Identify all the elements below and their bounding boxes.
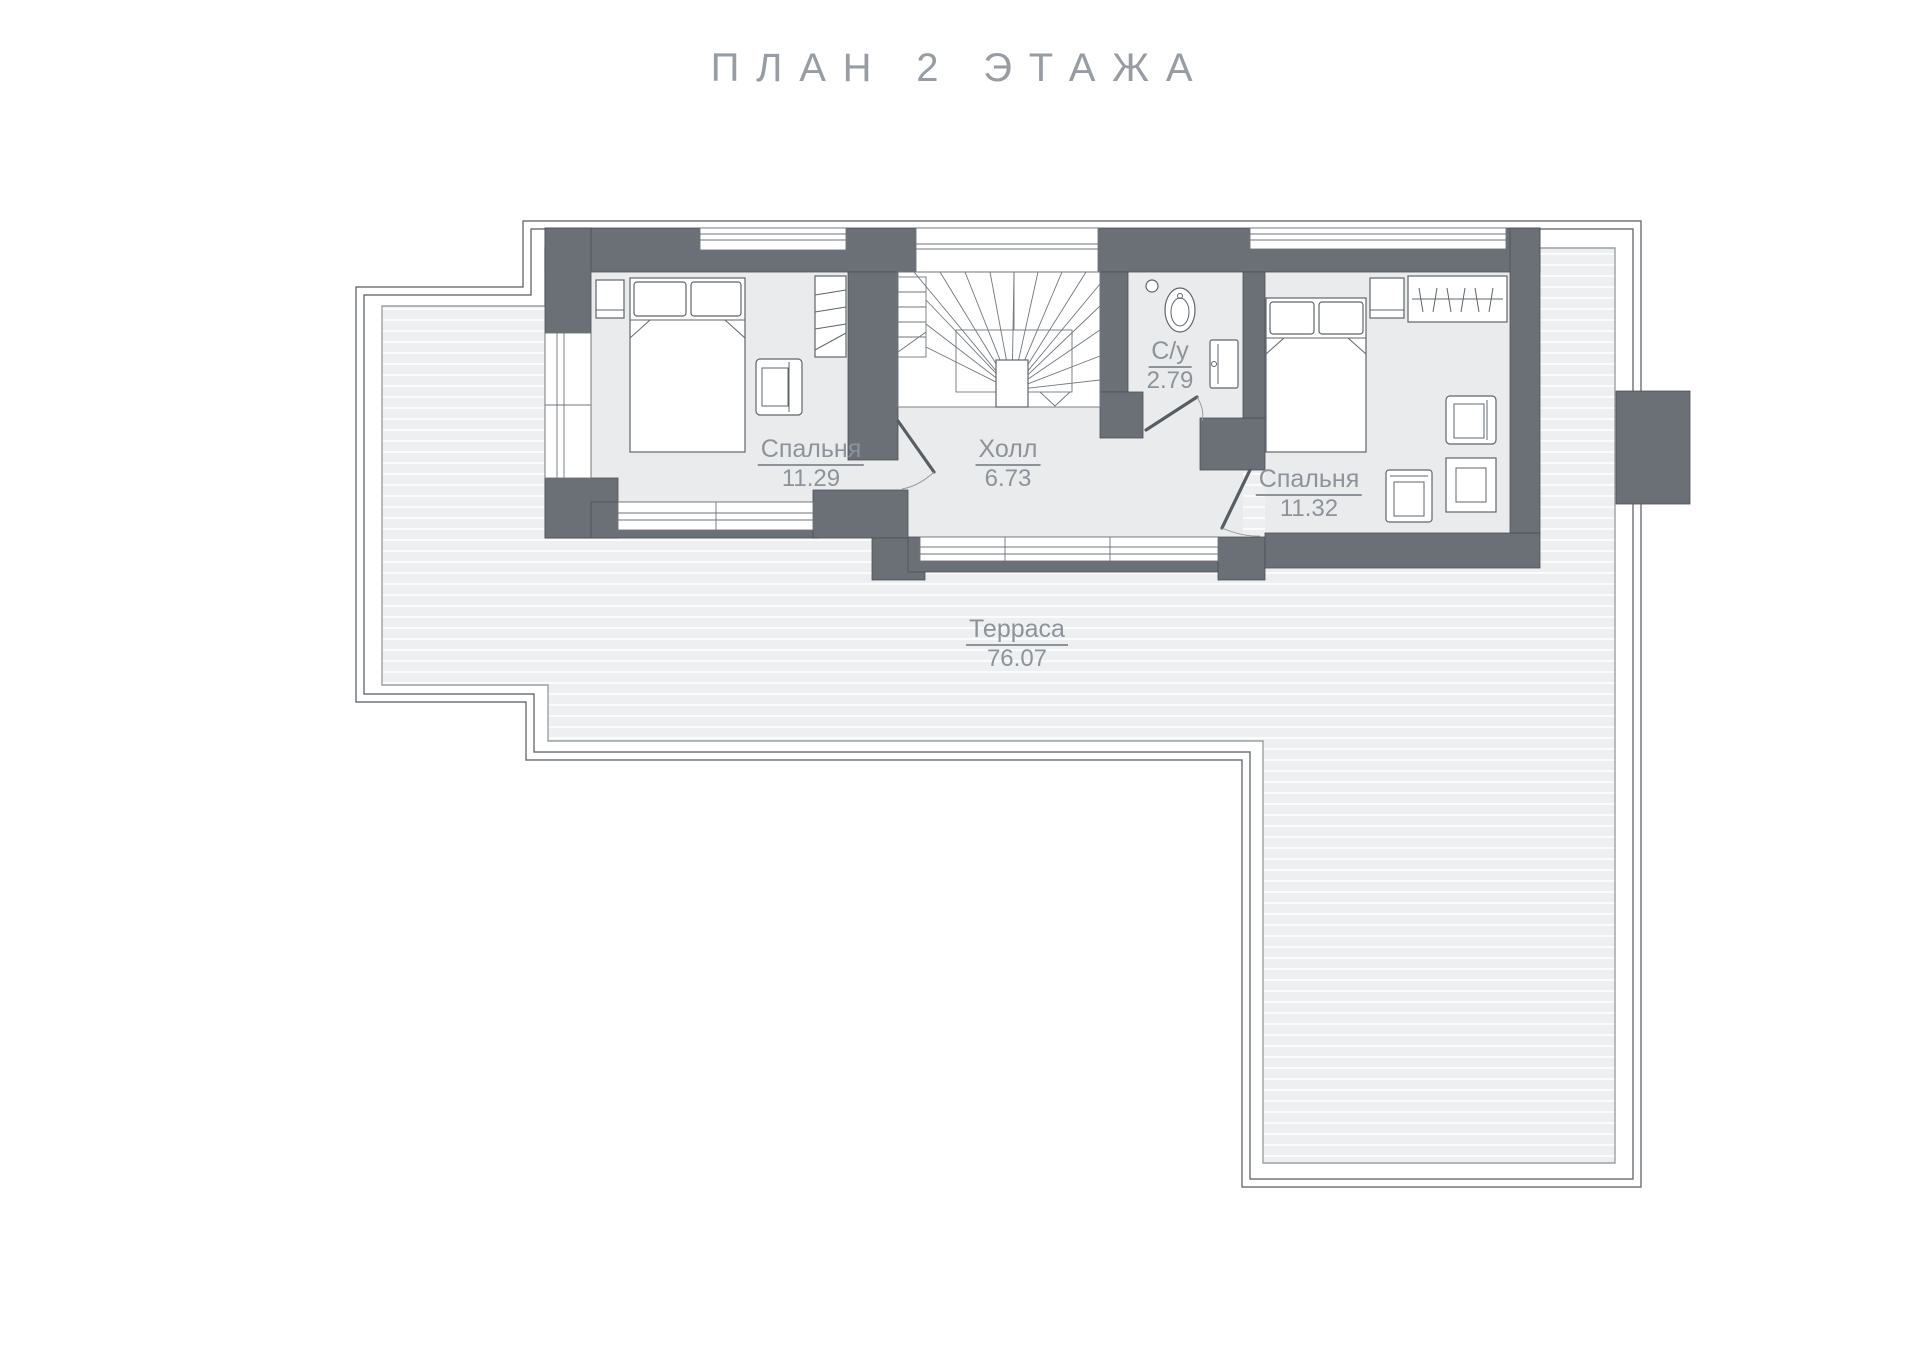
room-name: Спальня bbox=[758, 436, 864, 466]
room-label-bedroom-1: Спальня 11.29 bbox=[758, 436, 864, 492]
closet-icon bbox=[815, 276, 846, 357]
window-north-1 bbox=[700, 228, 846, 250]
room-name: С/у bbox=[1148, 338, 1192, 368]
window-north-2 bbox=[1250, 228, 1506, 249]
wall-bath-pier-west bbox=[1100, 392, 1143, 438]
wall-stair-bath bbox=[1100, 272, 1128, 392]
wall-south-bedroom2 bbox=[1265, 533, 1540, 568]
room-label-terrace: Терраса 76.07 bbox=[966, 616, 1068, 672]
window-south-bedroom1 bbox=[618, 502, 813, 530]
double-bed-icon bbox=[630, 278, 745, 452]
shower-icon bbox=[1210, 340, 1238, 388]
wall-east bbox=[1510, 228, 1540, 533]
side-table-icon bbox=[1446, 458, 1496, 512]
nightstand-icon bbox=[1370, 278, 1404, 318]
floor-hall bbox=[858, 392, 1243, 537]
window-south-hall bbox=[920, 537, 1218, 561]
wall-bath-east bbox=[1243, 272, 1265, 418]
room-area: 6.73 bbox=[976, 466, 1041, 492]
nightstand-icon bbox=[596, 280, 624, 318]
floor-plan-drawing bbox=[0, 0, 1920, 1357]
floor-plan-page: ПЛАН 2 ЭТАЖА bbox=[0, 0, 1920, 1357]
wall-pier-mid bbox=[813, 490, 908, 538]
room-name: Холл bbox=[976, 436, 1041, 466]
room-area: 11.32 bbox=[1256, 496, 1362, 522]
room-name: Спальня bbox=[1256, 466, 1362, 496]
wardrobe-icon bbox=[1408, 276, 1507, 322]
right-border-pier bbox=[1616, 391, 1690, 504]
sink-icon bbox=[1146, 280, 1158, 292]
armchair-icon bbox=[1446, 396, 1496, 444]
room-area: 76.07 bbox=[966, 646, 1068, 672]
room-label-bedroom-2: Спальня 11.32 bbox=[1256, 466, 1362, 522]
room-area: 2.79 bbox=[1147, 368, 1194, 394]
window-west bbox=[545, 333, 591, 478]
armchair-icon bbox=[756, 359, 802, 415]
stairwell-opening bbox=[916, 228, 1098, 272]
double-bed-icon bbox=[1266, 298, 1366, 452]
room-area: 11.29 bbox=[758, 466, 864, 492]
toilet-icon bbox=[1165, 288, 1195, 332]
room-name: Терраса bbox=[966, 616, 1068, 646]
room-label-bathroom: С/у 2.79 bbox=[1147, 338, 1194, 394]
chair-icon bbox=[1386, 470, 1432, 522]
wall-partition-bedroom1 bbox=[848, 272, 898, 460]
stair-newel bbox=[996, 360, 1028, 407]
wall-pier-south-east bbox=[1218, 537, 1265, 580]
wall-bath-pier-east bbox=[1200, 418, 1265, 470]
room-label-hall: Холл 6.73 bbox=[976, 436, 1041, 492]
